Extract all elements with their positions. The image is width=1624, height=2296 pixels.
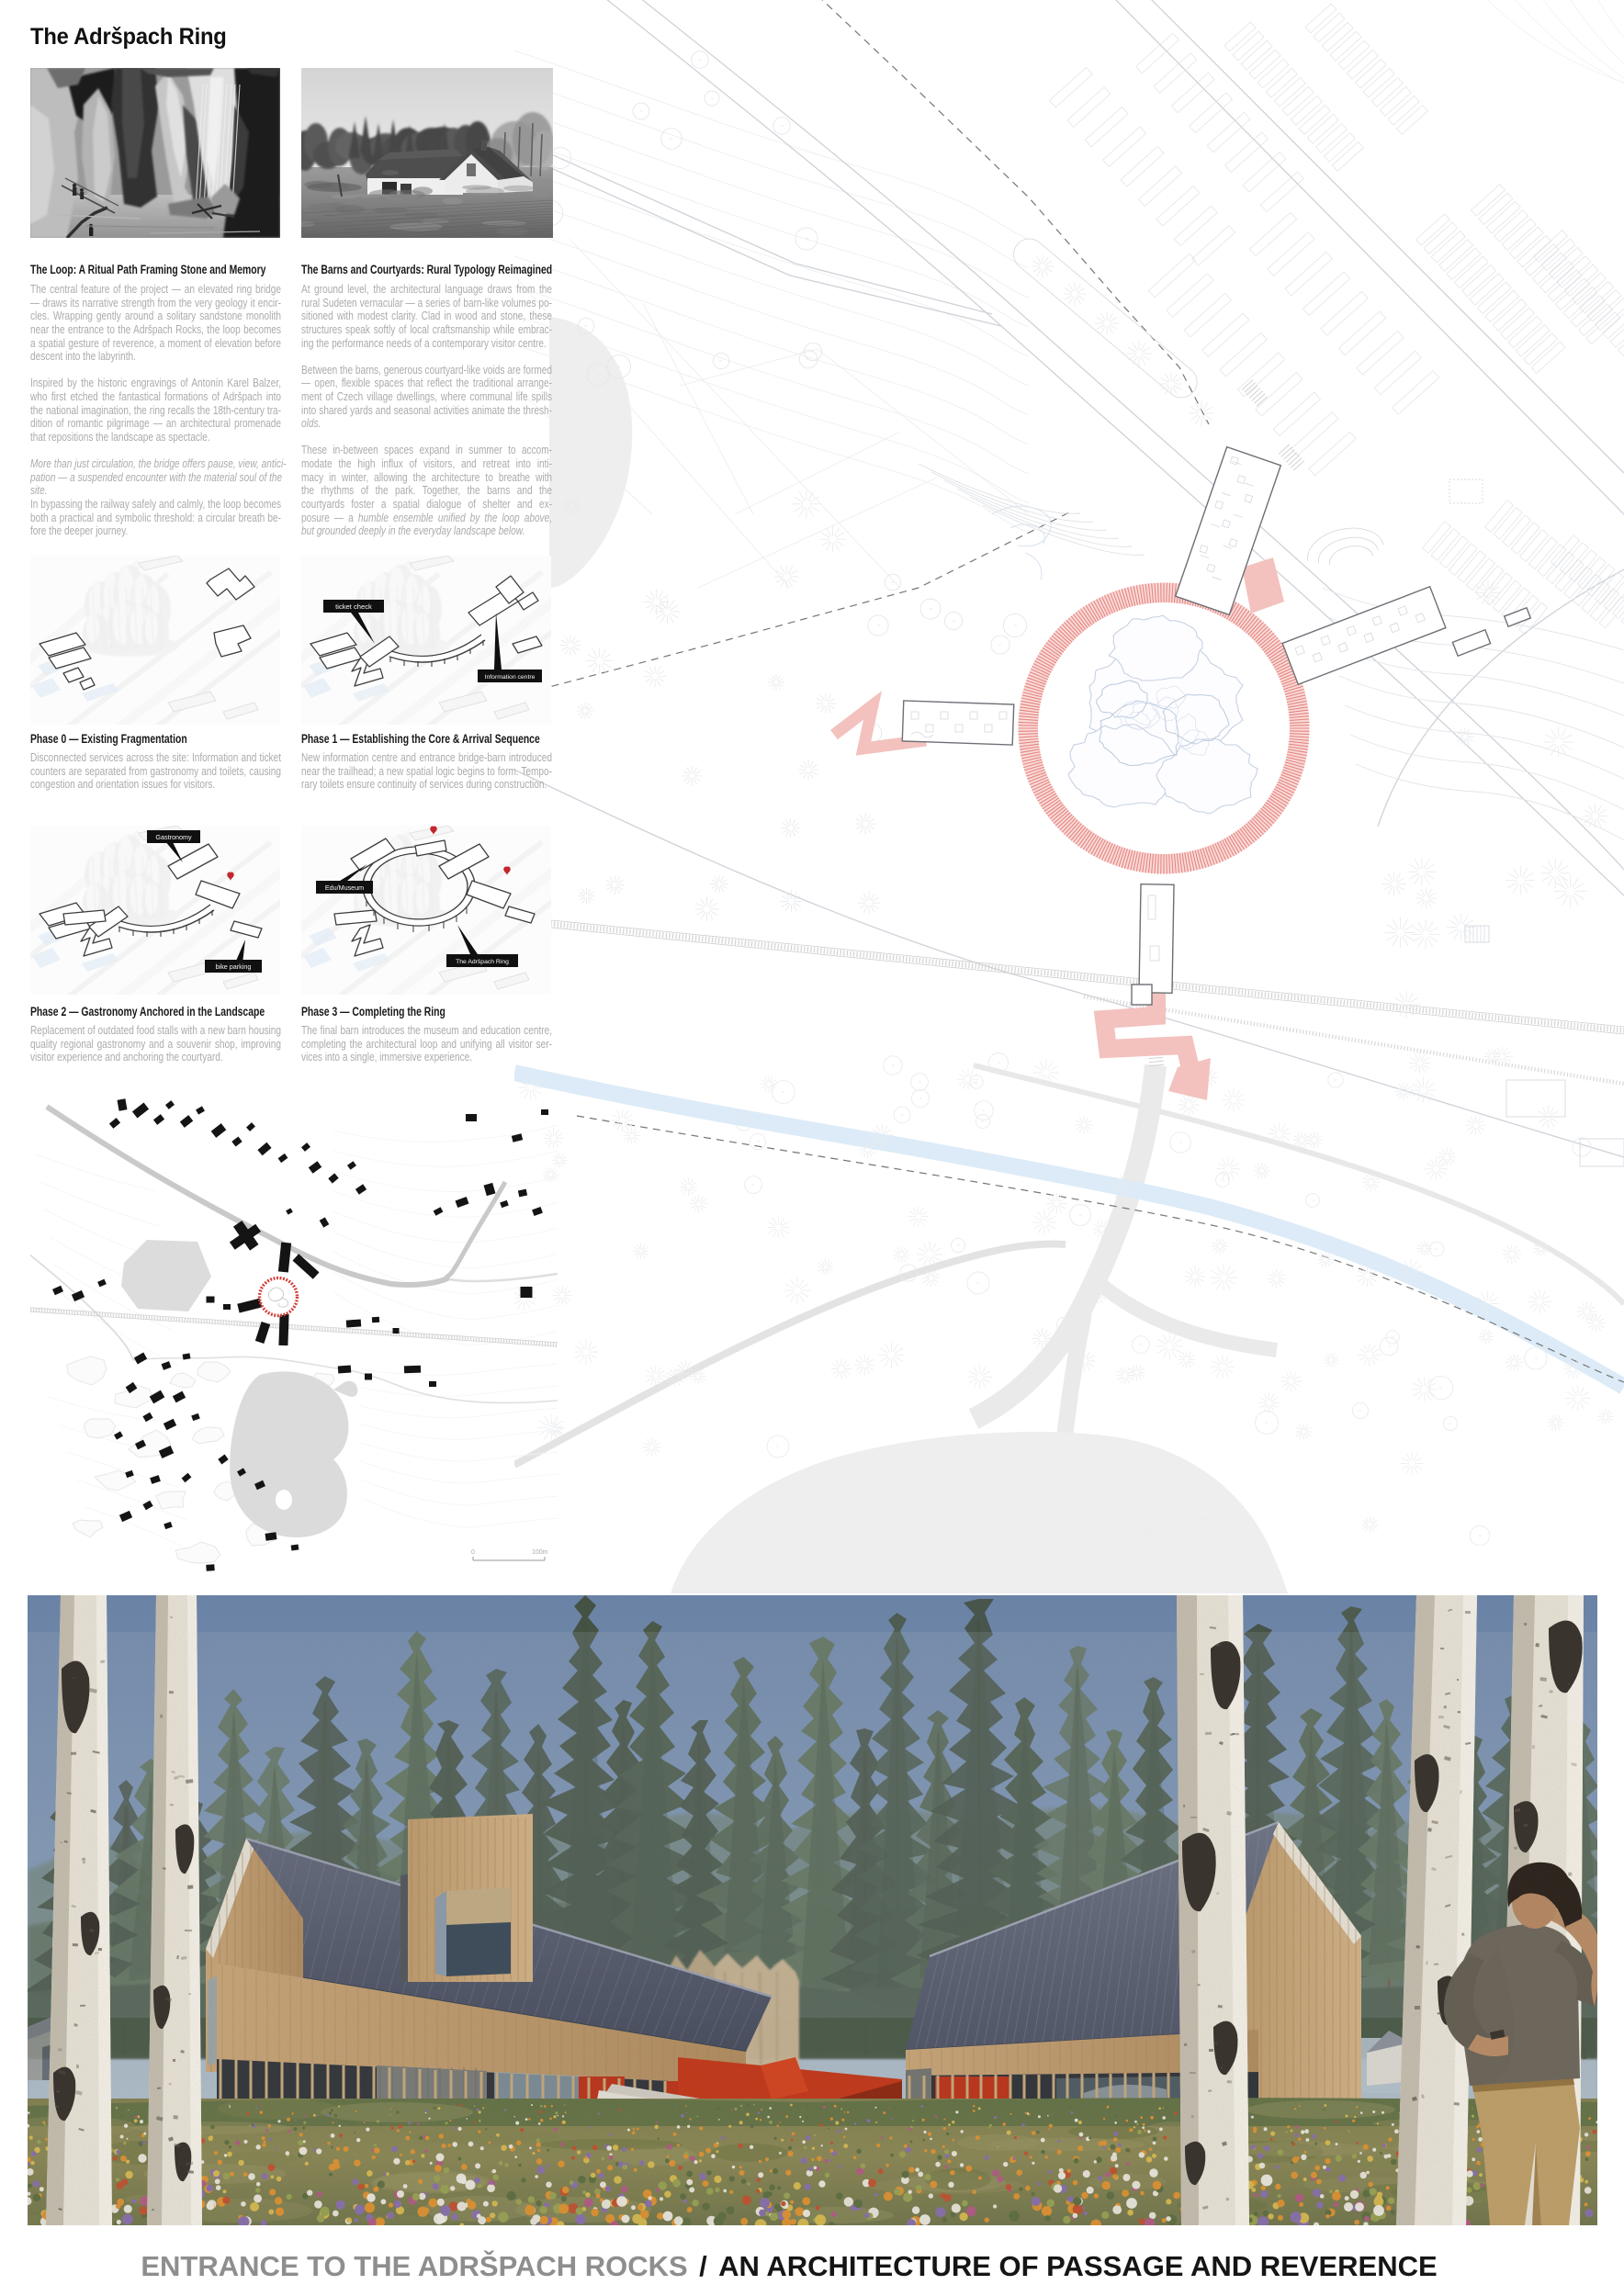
svg-text:100m: 100m	[532, 1549, 548, 1556]
svg-text:The Adršpach Ring: The Adršpach Ring	[456, 959, 509, 965]
svg-text:Gastronomy: Gastronomy	[155, 833, 192, 841]
svg-text:bike parking: bike parking	[216, 962, 252, 971]
svg-text:ticket check: ticket check	[335, 602, 372, 611]
svg-text:Information centre: Information centre	[485, 674, 536, 681]
svg-text:0: 0	[471, 1549, 475, 1556]
svg-text:Edu/Museum: Edu/Museum	[325, 884, 364, 892]
